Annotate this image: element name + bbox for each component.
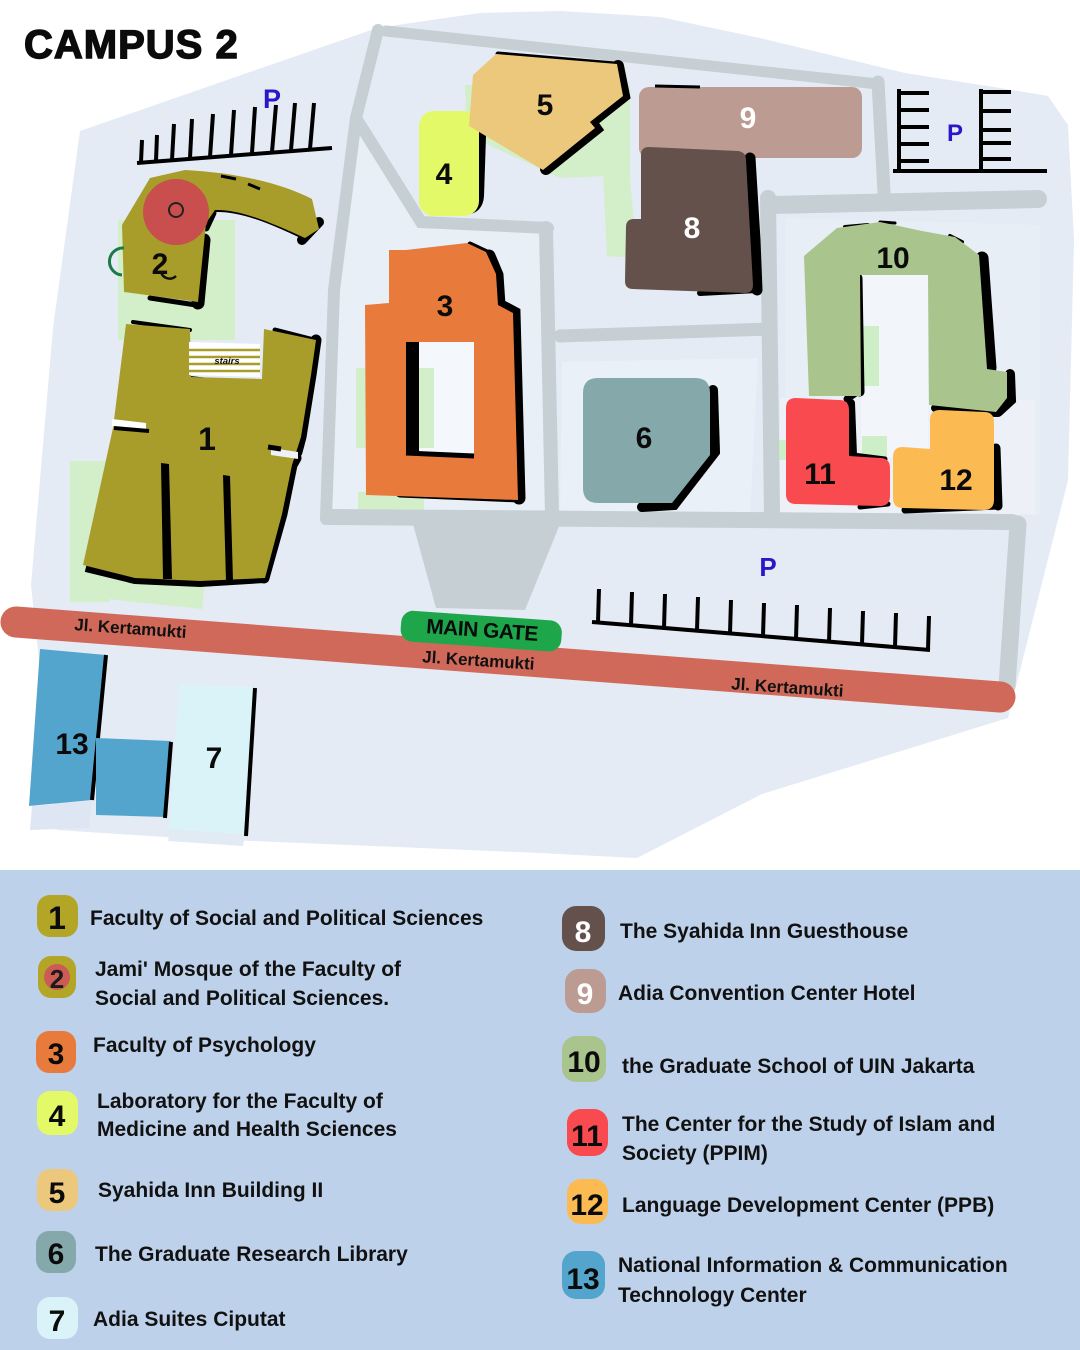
- svg-text:CAMPUS 2: CAMPUS 2: [24, 23, 239, 67]
- svg-text:1: 1: [198, 421, 216, 457]
- svg-text:P: P: [759, 552, 776, 582]
- svg-text:5: 5: [537, 89, 554, 122]
- svg-text:Jami' Mosque of the Faculty of: Jami' Mosque of the Faculty of: [95, 958, 402, 981]
- svg-text:11: 11: [571, 1120, 603, 1153]
- svg-text:Society (PPIM): Society (PPIM): [622, 1142, 768, 1165]
- svg-text:9: 9: [577, 978, 594, 1011]
- svg-text:Faculty of Social and Politica: Faculty of Social and Political Sciences: [90, 907, 483, 930]
- svg-text:Adia Suites Ciputat: Adia Suites Ciputat: [93, 1308, 286, 1331]
- svg-text:Social and Political Sciences.: Social and Political Sciences.: [95, 987, 389, 1010]
- svg-text:7: 7: [206, 742, 223, 775]
- svg-text:The Syahida Inn Guesthouse: The Syahida Inn Guesthouse: [620, 920, 908, 943]
- svg-text:11: 11: [804, 458, 836, 491]
- svg-text:4: 4: [436, 158, 453, 191]
- svg-text:12: 12: [570, 1189, 603, 1222]
- svg-text:13: 13: [566, 1263, 599, 1296]
- svg-text:the Graduate School of UIN Jak: the Graduate School of UIN Jakarta: [622, 1055, 975, 1078]
- svg-text:The Center for the Study of Is: The Center for the Study of Islam and: [622, 1113, 995, 1136]
- svg-text:Technology Center: Technology Center: [618, 1284, 807, 1307]
- svg-text:8: 8: [575, 916, 592, 949]
- svg-text:8: 8: [684, 212, 701, 245]
- svg-text:Syahida Inn Building II: Syahida Inn Building II: [98, 1179, 323, 1202]
- svg-text:Laboratory for the Faculty of: Laboratory for the Faculty of: [97, 1090, 384, 1113]
- svg-text:The Graduate Research Library: The Graduate Research Library: [95, 1243, 408, 1266]
- svg-text:6: 6: [48, 1238, 65, 1271]
- svg-text:6: 6: [636, 422, 653, 455]
- svg-text:4: 4: [49, 1100, 66, 1133]
- svg-text:7: 7: [49, 1305, 66, 1338]
- svg-text:stairs: stairs: [214, 356, 239, 367]
- svg-text:Language Development Center (P: Language Development Center (PPB): [622, 1194, 994, 1217]
- svg-text:13: 13: [55, 728, 88, 761]
- svg-text:P: P: [947, 120, 963, 147]
- svg-text:2: 2: [152, 248, 169, 281]
- svg-text:Adia Convention Center Hotel: Adia Convention Center Hotel: [618, 982, 916, 1005]
- svg-text:3: 3: [437, 290, 454, 323]
- svg-text:3: 3: [48, 1038, 65, 1071]
- svg-text:2: 2: [50, 964, 64, 994]
- svg-text:12: 12: [939, 464, 972, 497]
- svg-text:P: P: [263, 84, 281, 114]
- svg-text:1: 1: [48, 900, 66, 936]
- svg-text:10: 10: [567, 1046, 600, 1079]
- svg-text:Faculty of Psychology: Faculty of Psychology: [93, 1034, 316, 1057]
- svg-text:Medicine and Health Sciences: Medicine and Health Sciences: [97, 1118, 397, 1141]
- svg-text:10: 10: [876, 242, 909, 275]
- svg-text:National Information & Communi: National Information & Communication: [618, 1254, 1008, 1277]
- svg-text:9: 9: [740, 102, 757, 135]
- svg-text:5: 5: [49, 1177, 66, 1210]
